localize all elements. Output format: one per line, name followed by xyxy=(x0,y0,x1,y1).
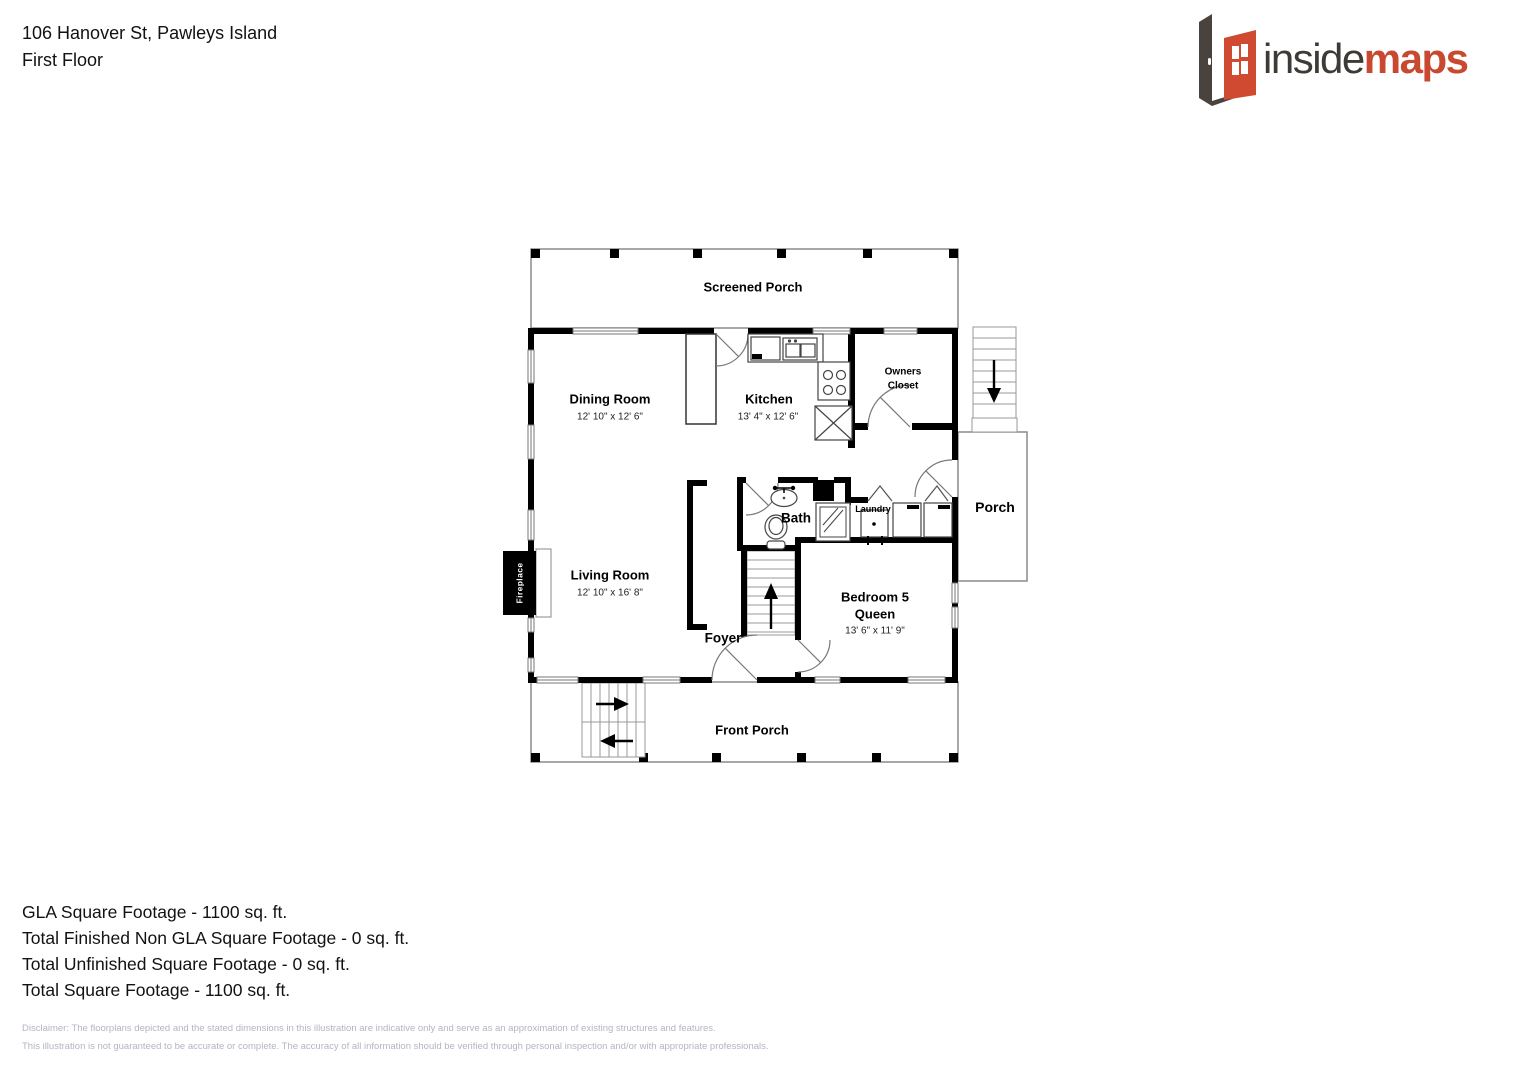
room-label-front-porch: Front Porch xyxy=(715,723,789,738)
room-label-bedroom5: Bedroom 5 xyxy=(841,590,909,605)
bath-sink-icon xyxy=(771,486,797,507)
side-porch-door xyxy=(915,460,952,497)
room-label-foyer: Foyer xyxy=(705,631,742,646)
floorplan-page: 106 Hanover St, Pawleys Island First Flo… xyxy=(0,0,1527,1080)
room-label-owners-closet-1: Owners xyxy=(885,367,922,378)
fridge-icon xyxy=(815,406,852,440)
room-dims-dining: 12' 10" x 12' 6" xyxy=(577,412,643,423)
room-dims-kitchen: 13' 4" x 12' 6" xyxy=(738,412,798,423)
summary-line-unfinished: Total Unfinished Square Footage - 0 sq. … xyxy=(22,954,350,975)
kitchen-porch-door xyxy=(716,334,748,366)
summary-line-non-gla: Total Finished Non GLA Square Footage - … xyxy=(22,928,409,949)
dryer-icon xyxy=(924,503,952,537)
summary-line-total: Total Square Footage - 1100 sq. ft. xyxy=(22,980,290,1001)
fireplace-label: Fireplace xyxy=(503,551,536,615)
foyer-stairs-up-arrow xyxy=(764,583,778,629)
room-label-side-porch: Porch xyxy=(975,499,1015,515)
room-label-owners-closet-2: Closet xyxy=(888,381,919,392)
summary-line-gla: GLA Square Footage - 1100 sq. ft. xyxy=(22,902,287,923)
room-label-dining: Dining Room xyxy=(570,392,651,407)
stove-counter xyxy=(818,362,850,400)
bedroom-door xyxy=(798,640,830,672)
room-label-bath: Bath xyxy=(781,511,811,526)
disclaimer-line-1: Disclaimer: The floorplans depicted and … xyxy=(22,1023,716,1034)
room-dims-living: 12' 10" x 16' 8" xyxy=(577,588,643,599)
kitchen-fixtures xyxy=(748,334,852,440)
room-dims-bedroom5: 13' 6" x 11' 9" xyxy=(845,626,905,637)
shower-icon xyxy=(816,503,850,541)
room-label-screened-porch: Screened Porch xyxy=(704,280,803,295)
washer-icon xyxy=(893,503,921,537)
utility-sink-icon xyxy=(861,510,888,537)
room-label-bedroom5-bed: Queen xyxy=(855,607,895,622)
bifold-doors xyxy=(868,486,948,501)
screened-porch-posts xyxy=(531,249,958,258)
disclaimer-line-2: This illustration is not guaranteed to b… xyxy=(22,1041,769,1052)
room-label-living: Living Room xyxy=(571,568,650,583)
room-label-laundry: Laundry xyxy=(855,504,891,514)
room-label-kitchen: Kitchen xyxy=(745,392,793,407)
dining-kitchen-divider xyxy=(686,334,716,424)
